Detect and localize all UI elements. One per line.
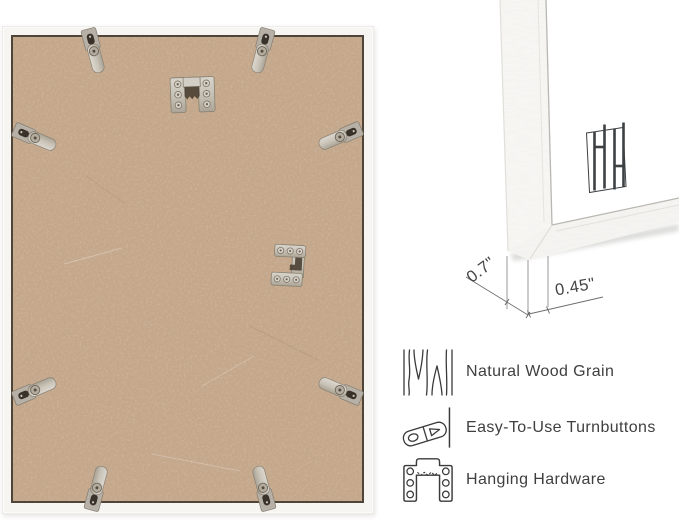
frame-back-graphic bbox=[2, 26, 374, 514]
feature-label: Easy-To-Use Turnbuttons bbox=[466, 419, 656, 437]
feature-row-hanging-hardware: Hanging Hardware bbox=[400, 456, 606, 504]
hanging-hardware-icon bbox=[400, 456, 456, 504]
frame-corner-closeup: 0.7" 0.45" bbox=[430, 0, 679, 332]
frame-back-view bbox=[2, 26, 374, 514]
feature-row-wood-grain: Natural Wood Grain bbox=[400, 348, 614, 396]
face-width-measurement: 0.45" bbox=[554, 275, 597, 300]
mdf-backing bbox=[13, 37, 362, 501]
frame-front-matte bbox=[546, 0, 679, 225]
turnbutton-icon bbox=[400, 403, 456, 453]
depth-measurement: 0.7" bbox=[463, 254, 498, 287]
product-image: 0.7" 0.45" Natural Wood Grain bbox=[0, 0, 679, 523]
corner-graphic: 0.7" 0.45" bbox=[430, 0, 679, 332]
feature-row-turnbuttons: Easy-To-Use Turnbuttons bbox=[400, 404, 656, 452]
wood-grain-icon bbox=[400, 349, 456, 396]
feature-label: Hanging Hardware bbox=[466, 471, 606, 489]
feature-label: Natural Wood Grain bbox=[466, 363, 614, 381]
